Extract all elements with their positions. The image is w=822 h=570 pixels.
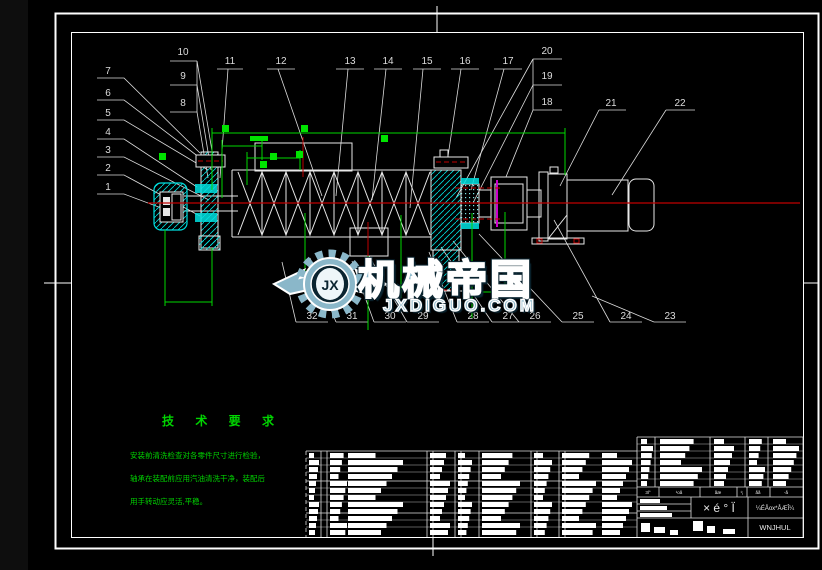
- tb-drawing-title: × é ° Ï: [703, 501, 735, 515]
- callout-12: 12: [275, 56, 287, 67]
- callout-30: 30: [384, 311, 396, 322]
- tb-info-row: ¼ÉÅox*ÅÆÎ¼: [756, 505, 795, 512]
- cad-viewport[interactable]: 1234567891011121314151617181920212223242…: [0, 0, 822, 570]
- tb-company-row: WNJHUL: [759, 523, 790, 532]
- motor: [532, 167, 654, 244]
- left-coupling: [154, 183, 187, 230]
- callout-7: 7: [105, 66, 111, 77]
- callout-11: 11: [225, 56, 236, 67]
- callout-23: 23: [664, 311, 676, 322]
- title-block-lines: [637, 437, 803, 537]
- callout-24: 24: [620, 311, 632, 322]
- callout-14: 14: [382, 56, 394, 67]
- left-flange-plate: [195, 152, 225, 250]
- callout-29: 29: [417, 311, 429, 322]
- callout-15: 15: [421, 56, 433, 67]
- callout-32: 32: [306, 311, 318, 322]
- callout-21: 21: [605, 98, 617, 109]
- callout-9: 9: [180, 71, 186, 82]
- callout-19: 19: [541, 71, 553, 82]
- callout-20: 20: [541, 46, 553, 57]
- tb-header-label-6: -­å: [784, 489, 788, 495]
- callout-3: 3: [105, 145, 111, 156]
- callout-27: 27: [502, 311, 514, 322]
- callout-8: 8: [180, 98, 186, 109]
- callout-26: 26: [529, 311, 541, 322]
- callout-6: 6: [105, 88, 111, 99]
- callout-16: 16: [459, 56, 471, 67]
- callout-2: 2: [105, 163, 111, 174]
- tech-requirements-title: 技 术 要 求: [162, 412, 330, 429]
- callout-25: 25: [572, 311, 584, 322]
- callout-1: 1: [105, 182, 111, 193]
- callout-31: 31: [346, 311, 358, 322]
- callout-10: 10: [177, 47, 189, 58]
- tb-header-label-1: 3l°: [645, 490, 651, 495]
- assembly-drawing: [148, 125, 800, 330]
- tb-header-label-2: ¹oå: [676, 489, 683, 495]
- end-bearing-assembly: [424, 150, 541, 291]
- tb-header-label-4: ¹¡: [741, 490, 744, 495]
- callout-4: 4: [105, 127, 111, 138]
- tech-requirements-note: 技 术 要 求 安装前清洗检查对各零件尺寸进行检验， 轴承在装配前应用汽油清洗干…: [130, 412, 330, 519]
- tech-requirements-line: 安装前清洗检查对各零件尺寸进行检验，: [130, 450, 330, 462]
- tb-header-label-5: åå: [755, 489, 761, 495]
- callout-5: 5: [105, 108, 111, 119]
- parts-list-table: 3l° ¹oå åæ ¹¡ åå -­å × é ° Ï ¼ÉÅox*ÅÆÎ¼ …: [306, 437, 803, 537]
- callout-17: 17: [502, 56, 514, 67]
- callout-13: 13: [344, 56, 356, 67]
- callout-18: 18: [541, 97, 553, 108]
- callout-22: 22: [674, 98, 686, 109]
- tb-header-label-3: åæ: [715, 489, 722, 495]
- tech-requirements-line: 用手转动应灵活,平稳。: [130, 496, 330, 508]
- callout-28: 28: [467, 311, 479, 322]
- drawing-canvas: 1234567891011121314151617181920212223242…: [0, 0, 822, 570]
- bom-text-blobs-right: [641, 439, 799, 486]
- tech-requirements-line: 轴承在装配前应用汽油清洗干净，装配后: [130, 473, 330, 485]
